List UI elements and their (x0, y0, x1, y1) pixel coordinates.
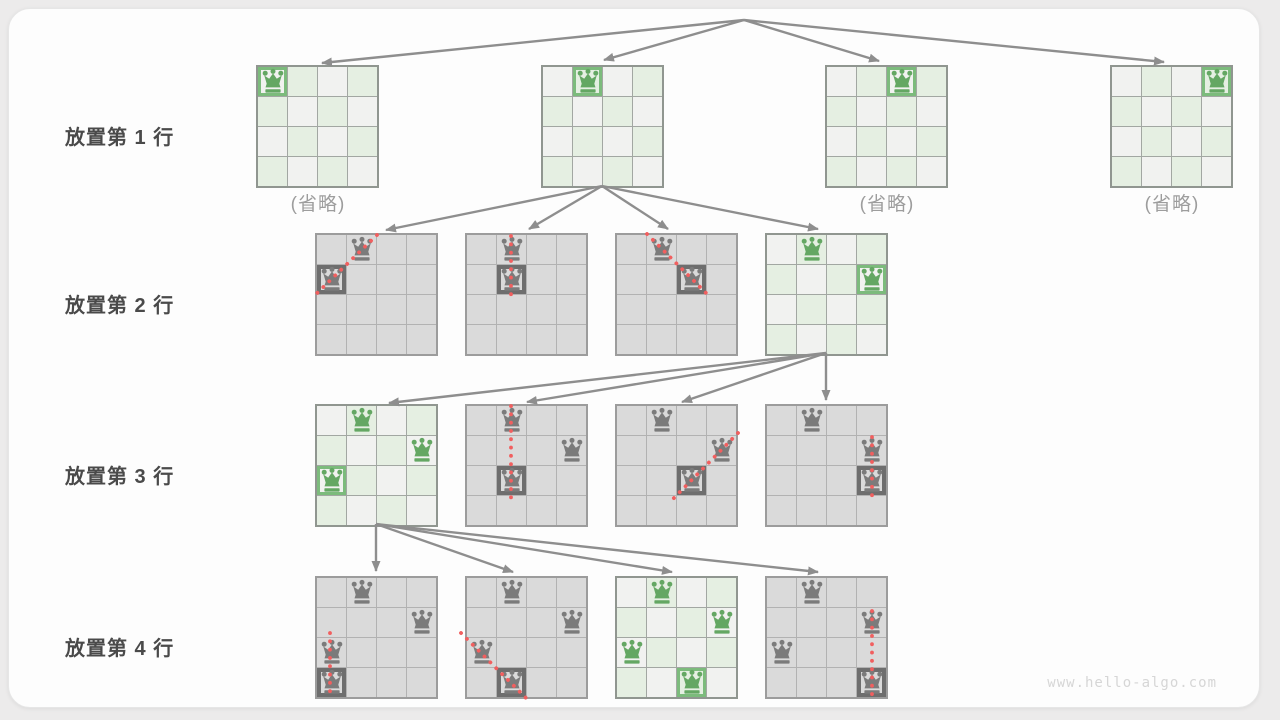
cell-r2c2 (377, 295, 406, 324)
cell-r3c0 (317, 325, 346, 354)
queen-icon (680, 669, 704, 696)
cell-r0c0 (467, 235, 496, 264)
row-label-4: 放置第 4 行 (65, 632, 215, 661)
cell-r2c0 (467, 466, 496, 495)
cell-r0c2 (527, 406, 556, 435)
omitted-label: (省略) (860, 189, 915, 216)
cell-r3c1 (647, 668, 676, 697)
cell-r2c2 (677, 466, 706, 495)
cell-r3c3 (917, 157, 946, 186)
cell-r2c2 (677, 295, 706, 324)
queen-icon (770, 639, 794, 666)
cell-r1c2 (527, 265, 556, 294)
queen-icon (500, 407, 524, 434)
cell-r0c2 (377, 578, 406, 607)
cell-r1c0 (767, 436, 796, 465)
cell-r1c1 (497, 436, 526, 465)
cell-r3c3 (857, 325, 886, 354)
cell-r2c3 (707, 295, 736, 324)
cell-r2c0 (1112, 127, 1141, 156)
cell-r1c0 (617, 608, 646, 637)
cell-r1c1 (497, 265, 526, 294)
cell-r3c0 (827, 157, 856, 186)
cell-r2c3 (348, 127, 377, 156)
queen-icon (320, 669, 344, 696)
cell-r2c1 (647, 295, 676, 324)
cell-r3c2 (527, 668, 556, 697)
cell-r0c1 (797, 235, 826, 264)
cell-r1c3 (407, 608, 436, 637)
cell-r2c2 (377, 638, 406, 667)
cell-r2c3 (407, 638, 436, 667)
omitted-label: (省略) (291, 189, 346, 216)
cell-r0c2 (527, 235, 556, 264)
cell-r1c1 (797, 436, 826, 465)
cell-r1c2 (318, 97, 347, 126)
cell-r3c0 (617, 496, 646, 525)
queen-icon (650, 579, 674, 606)
board-row4-option1 (315, 576, 438, 699)
cell-r1c1 (797, 608, 826, 637)
cell-r3c1 (347, 668, 376, 697)
cell-r1c0 (467, 265, 496, 294)
cell-r0c1 (647, 235, 676, 264)
cell-r1c3 (857, 436, 886, 465)
cell-r1c0 (467, 436, 496, 465)
cell-r2c0 (617, 638, 646, 667)
board-row2-option2 (465, 233, 588, 356)
cell-r0c2 (603, 67, 632, 96)
queen-icon (320, 467, 344, 494)
cell-r1c3 (557, 265, 586, 294)
cell-r3c3 (557, 668, 586, 697)
cell-r2c2 (527, 638, 556, 667)
cell-r0c1 (647, 578, 676, 607)
cell-r1c1 (347, 436, 376, 465)
queen-icon (650, 407, 674, 434)
board-row4-option4 (765, 576, 888, 699)
cell-r1c1 (573, 97, 602, 126)
cell-r2c1 (647, 466, 676, 495)
queen-icon (860, 467, 884, 494)
cell-r1c2 (377, 265, 406, 294)
cell-r0c3 (557, 406, 586, 435)
board-row2-option1 (315, 233, 438, 356)
cell-r1c0 (767, 608, 796, 637)
cell-r0c0 (767, 235, 796, 264)
cell-r3c2 (377, 325, 406, 354)
cell-r0c1 (497, 235, 526, 264)
cell-r3c2 (1172, 157, 1201, 186)
cell-r0c1 (857, 67, 886, 96)
cell-r1c1 (1142, 97, 1171, 126)
cell-r1c2 (827, 436, 856, 465)
cell-r0c0 (543, 67, 572, 96)
cell-r3c3 (707, 325, 736, 354)
queen-icon (500, 669, 524, 696)
cell-r1c3 (857, 265, 886, 294)
cell-r0c0 (617, 578, 646, 607)
cell-r2c0 (467, 638, 496, 667)
cell-r0c3 (857, 578, 886, 607)
cell-r3c1 (797, 668, 826, 697)
cell-r1c0 (317, 265, 346, 294)
cell-r2c0 (767, 295, 796, 324)
cell-r1c2 (377, 436, 406, 465)
cell-r0c3 (857, 406, 886, 435)
cell-r0c0 (317, 406, 346, 435)
cell-r0c3 (857, 235, 886, 264)
cell-r3c1 (647, 496, 676, 525)
cell-r0c3 (633, 67, 662, 96)
cell-r1c1 (288, 97, 317, 126)
cell-r1c2 (677, 608, 706, 637)
cell-r0c0 (467, 406, 496, 435)
cell-r1c3 (407, 265, 436, 294)
cell-r1c2 (603, 97, 632, 126)
cell-r1c1 (797, 265, 826, 294)
cell-r0c3 (1202, 67, 1231, 96)
queen-icon (860, 266, 884, 293)
cell-r3c2 (603, 157, 632, 186)
queen-icon (500, 467, 524, 494)
board-row3-option3 (615, 404, 738, 527)
cell-r3c2 (827, 325, 856, 354)
cell-r0c2 (318, 67, 347, 96)
cell-r3c1 (1142, 157, 1171, 186)
cell-r2c0 (827, 127, 856, 156)
queen-icon (710, 437, 734, 464)
cell-r2c0 (317, 295, 346, 324)
cell-r2c1 (1142, 127, 1171, 156)
cell-r2c1 (347, 466, 376, 495)
cell-r2c2 (827, 638, 856, 667)
queen-icon (1205, 68, 1229, 95)
cell-r1c3 (857, 608, 886, 637)
cell-r3c2 (677, 668, 706, 697)
cell-r1c1 (647, 265, 676, 294)
board-row3-option1 (315, 404, 438, 527)
cell-r3c3 (557, 496, 586, 525)
cell-r2c1 (347, 638, 376, 667)
cell-r2c1 (497, 466, 526, 495)
cell-r0c0 (617, 406, 646, 435)
queen-icon (860, 437, 884, 464)
cell-r0c2 (677, 235, 706, 264)
cell-r1c3 (1202, 97, 1231, 126)
cell-r1c2 (527, 436, 556, 465)
queen-icon (500, 236, 524, 263)
cell-r1c1 (857, 97, 886, 126)
queen-icon (320, 639, 344, 666)
cell-r2c2 (827, 295, 856, 324)
cell-r1c2 (527, 608, 556, 637)
cell-r3c3 (633, 157, 662, 186)
cell-r3c0 (467, 325, 496, 354)
cell-r2c0 (617, 466, 646, 495)
cell-r0c1 (573, 67, 602, 96)
cell-r0c3 (557, 578, 586, 607)
cell-r2c0 (258, 127, 287, 156)
cell-r0c2 (377, 406, 406, 435)
queen-icon (680, 467, 704, 494)
queen-icon (560, 609, 584, 636)
cell-r2c2 (887, 127, 916, 156)
cell-r2c2 (603, 127, 632, 156)
cell-r1c0 (617, 265, 646, 294)
queen-icon (320, 266, 344, 293)
cell-r0c2 (827, 406, 856, 435)
cell-r1c3 (633, 97, 662, 126)
cell-r1c3 (917, 97, 946, 126)
board-row1-option3 (825, 65, 948, 188)
cell-r3c2 (677, 325, 706, 354)
queen-icon (500, 579, 524, 606)
cell-r0c1 (347, 235, 376, 264)
cell-r3c3 (348, 157, 377, 186)
cell-r0c1 (797, 406, 826, 435)
cell-r3c3 (857, 496, 886, 525)
cell-r2c0 (317, 638, 346, 667)
cell-r1c3 (557, 436, 586, 465)
board-row2-option3 (615, 233, 738, 356)
cell-r2c0 (317, 466, 346, 495)
cell-r3c0 (767, 668, 796, 697)
cell-r0c1 (1142, 67, 1171, 96)
board-row4-option2 (465, 576, 588, 699)
cell-r0c2 (1172, 67, 1201, 96)
cell-r3c0 (317, 496, 346, 525)
board-row1-option4 (1110, 65, 1233, 188)
queen-icon (860, 669, 884, 696)
cell-r1c3 (407, 436, 436, 465)
cell-r0c0 (767, 578, 796, 607)
cell-r3c2 (827, 668, 856, 697)
cell-r1c0 (543, 97, 572, 126)
queen-icon (350, 579, 374, 606)
cell-r1c3 (348, 97, 377, 126)
cell-r3c1 (288, 157, 317, 186)
board-row4-option3 (615, 576, 738, 699)
cell-r2c3 (557, 295, 586, 324)
cell-r1c2 (1172, 97, 1201, 126)
cell-r0c0 (617, 235, 646, 264)
cell-r3c0 (767, 496, 796, 525)
cell-r1c3 (707, 608, 736, 637)
cell-r3c3 (557, 325, 586, 354)
cell-r3c3 (707, 668, 736, 697)
row-label-2: 放置第 2 行 (65, 289, 215, 318)
cell-r3c2 (318, 157, 347, 186)
cell-r1c3 (557, 608, 586, 637)
cell-r0c3 (917, 67, 946, 96)
cell-r0c0 (467, 578, 496, 607)
queen-icon (800, 236, 824, 263)
cell-r2c3 (857, 466, 886, 495)
cell-r2c3 (1202, 127, 1231, 156)
cell-r2c2 (377, 466, 406, 495)
cell-r2c3 (917, 127, 946, 156)
cell-r1c0 (317, 436, 346, 465)
cell-r3c0 (767, 325, 796, 354)
cell-r0c1 (288, 67, 317, 96)
queen-icon (800, 579, 824, 606)
cell-r0c2 (677, 578, 706, 607)
cell-r1c1 (347, 265, 376, 294)
cell-r0c1 (347, 578, 376, 607)
cell-r0c3 (707, 578, 736, 607)
queen-icon (710, 609, 734, 636)
queen-icon (860, 609, 884, 636)
cell-r0c1 (647, 406, 676, 435)
cell-r0c2 (677, 406, 706, 435)
cell-r1c0 (617, 436, 646, 465)
cell-r0c1 (497, 406, 526, 435)
omitted-label: (省略) (1145, 189, 1200, 216)
cell-r3c3 (407, 668, 436, 697)
cell-r2c1 (797, 638, 826, 667)
cell-r3c0 (258, 157, 287, 186)
cell-r1c3 (707, 436, 736, 465)
cell-r2c1 (857, 127, 886, 156)
cell-r2c1 (288, 127, 317, 156)
cell-r3c1 (347, 496, 376, 525)
cell-r2c0 (617, 295, 646, 324)
queen-icon (560, 437, 584, 464)
cell-r2c1 (347, 295, 376, 324)
cell-r1c1 (347, 608, 376, 637)
queen-icon (350, 236, 374, 263)
cell-r3c2 (887, 157, 916, 186)
cell-r0c0 (317, 578, 346, 607)
cell-r3c0 (617, 325, 646, 354)
queen-icon (680, 266, 704, 293)
cell-r2c1 (497, 638, 526, 667)
cell-r3c1 (797, 496, 826, 525)
cell-r2c2 (527, 295, 556, 324)
queen-icon (576, 68, 600, 95)
cell-r3c1 (497, 496, 526, 525)
cell-r2c3 (707, 466, 736, 495)
board-row3-option4 (765, 404, 888, 527)
cell-r0c2 (377, 235, 406, 264)
cell-r3c1 (497, 668, 526, 697)
cell-r1c1 (497, 608, 526, 637)
queen-icon (650, 236, 674, 263)
cell-r3c3 (857, 668, 886, 697)
cell-r0c3 (407, 406, 436, 435)
cell-r3c2 (677, 496, 706, 525)
cell-r0c2 (827, 235, 856, 264)
queen-icon (800, 407, 824, 434)
cell-r2c3 (857, 295, 886, 324)
cell-r0c3 (348, 67, 377, 96)
cell-r2c3 (707, 638, 736, 667)
cell-r1c0 (317, 608, 346, 637)
cell-r2c2 (1172, 127, 1201, 156)
cell-r2c1 (647, 638, 676, 667)
cell-r2c3 (407, 295, 436, 324)
cell-r3c3 (707, 496, 736, 525)
cell-r0c0 (317, 235, 346, 264)
watermark-url: www.hello-algo.com (1047, 675, 1217, 691)
cell-r0c0 (827, 67, 856, 96)
cell-r2c2 (827, 466, 856, 495)
cell-r3c2 (527, 496, 556, 525)
queen-icon (500, 266, 524, 293)
cell-r3c1 (857, 157, 886, 186)
cell-r1c2 (887, 97, 916, 126)
cell-r1c0 (467, 608, 496, 637)
queen-icon (410, 609, 434, 636)
cell-r1c0 (1112, 97, 1141, 126)
cell-r1c0 (258, 97, 287, 126)
cell-r3c1 (497, 325, 526, 354)
cell-r2c1 (573, 127, 602, 156)
cell-r3c1 (347, 325, 376, 354)
cell-r3c2 (527, 325, 556, 354)
cell-r0c3 (407, 235, 436, 264)
cell-r2c1 (497, 295, 526, 324)
cell-r2c3 (633, 127, 662, 156)
cell-r0c2 (827, 578, 856, 607)
cell-r0c0 (767, 406, 796, 435)
cell-r2c0 (543, 127, 572, 156)
cell-r0c2 (527, 578, 556, 607)
cell-r2c1 (797, 466, 826, 495)
cell-r3c2 (827, 496, 856, 525)
cell-r0c3 (557, 235, 586, 264)
cell-r0c1 (797, 578, 826, 607)
cell-r3c1 (647, 325, 676, 354)
cell-r0c0 (1112, 67, 1141, 96)
queen-icon (620, 639, 644, 666)
cell-r1c2 (827, 608, 856, 637)
queen-icon (470, 639, 494, 666)
cell-r1c2 (677, 436, 706, 465)
cell-r3c1 (573, 157, 602, 186)
cell-r2c2 (527, 466, 556, 495)
queen-icon (410, 437, 434, 464)
cell-r2c3 (557, 638, 586, 667)
cell-r3c0 (467, 496, 496, 525)
cell-r3c0 (317, 668, 346, 697)
cell-r3c0 (467, 668, 496, 697)
queen-icon (261, 68, 285, 95)
cell-r2c0 (767, 638, 796, 667)
cell-r1c1 (647, 436, 676, 465)
cell-r3c1 (797, 325, 826, 354)
cell-r2c0 (767, 466, 796, 495)
board-row1-option1 (256, 65, 379, 188)
cell-r0c2 (887, 67, 916, 96)
cell-r0c1 (497, 578, 526, 607)
cell-r1c2 (677, 265, 706, 294)
cell-r3c2 (377, 668, 406, 697)
cell-r0c3 (707, 406, 736, 435)
cell-r2c3 (557, 466, 586, 495)
cell-r3c2 (377, 496, 406, 525)
row-label-1: 放置第 1 行 (65, 121, 215, 150)
cell-r3c3 (407, 325, 436, 354)
cell-r3c3 (407, 496, 436, 525)
cell-r0c3 (407, 578, 436, 607)
cell-r1c0 (827, 97, 856, 126)
board-row2-option4 (765, 233, 888, 356)
cell-r3c0 (617, 668, 646, 697)
board-row3-option2 (465, 404, 588, 527)
cell-r3c0 (1112, 157, 1141, 186)
